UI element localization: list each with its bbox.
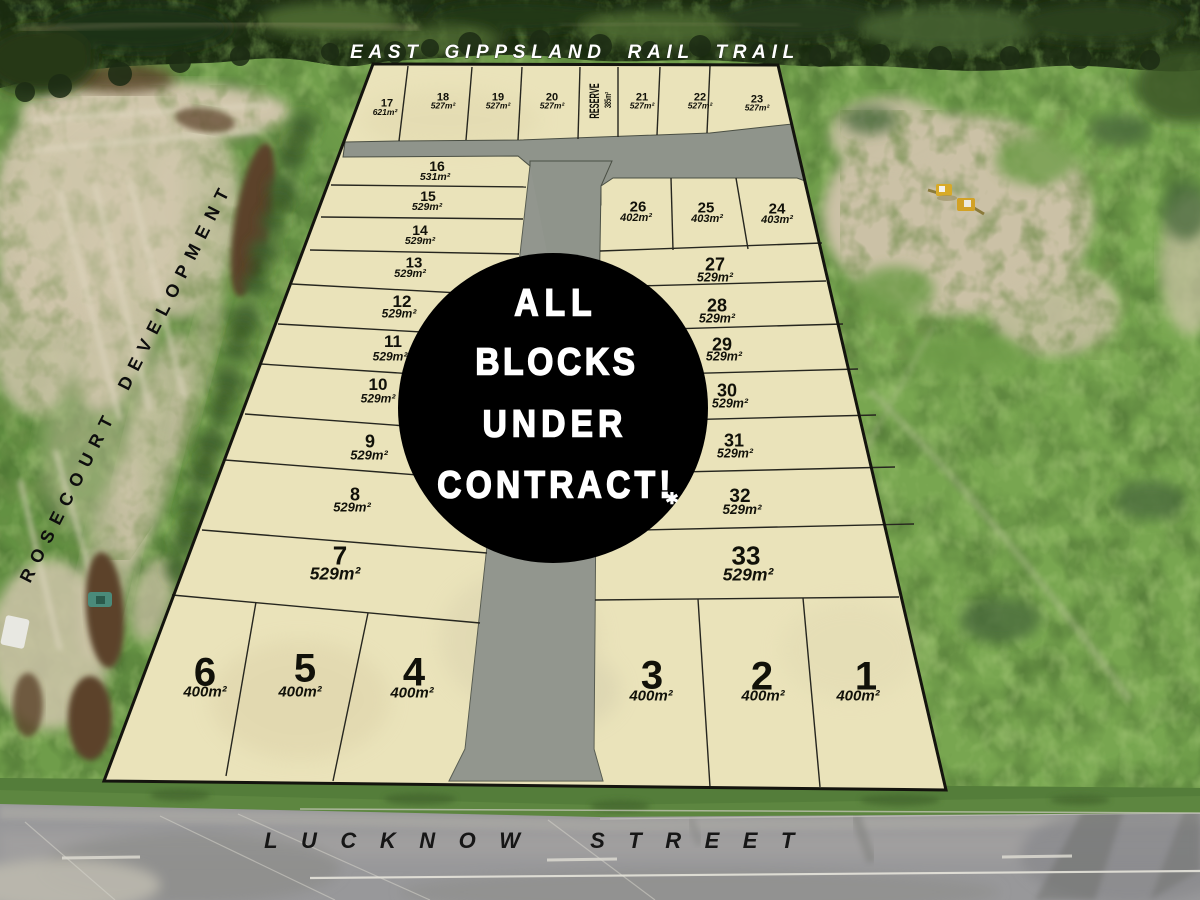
svg-text:529m²: 529m² [394, 268, 426, 280]
svg-text:400m²: 400m² [740, 687, 785, 704]
svg-text:529m²: 529m² [712, 397, 749, 411]
svg-text:529m²: 529m² [361, 391, 397, 405]
svg-text:529m²: 529m² [699, 312, 736, 326]
svg-text:529m²: 529m² [333, 500, 371, 515]
svg-text:ALL: ALL [514, 282, 597, 324]
svg-text:400m²: 400m² [835, 687, 880, 704]
svg-text:529m²: 529m² [722, 502, 762, 517]
svg-text:403m²: 403m² [760, 214, 793, 226]
svg-text:400m²: 400m² [182, 683, 227, 700]
svg-text:400m²: 400m² [389, 684, 434, 701]
svg-text:BLOCKS: BLOCKS [475, 341, 638, 383]
svg-text:527m²: 527m² [745, 103, 771, 113]
svg-text:LUCKNOW STREET: LUCKNOW STREET [264, 828, 818, 853]
svg-text:527m²: 527m² [486, 101, 512, 111]
svg-text:CONTRACT!: CONTRACT! [437, 464, 674, 506]
svg-text:529m²: 529m² [723, 564, 775, 584]
svg-text:529m²: 529m² [382, 306, 418, 320]
svg-text:531m²: 531m² [420, 171, 451, 183]
svg-text:529m²: 529m² [350, 448, 388, 463]
svg-text:529m²: 529m² [405, 235, 436, 247]
svg-text:529m²: 529m² [412, 201, 443, 213]
svg-text:529m²: 529m² [373, 349, 409, 363]
svg-text:✱: ✱ [665, 491, 678, 508]
svg-text:11: 11 [384, 332, 402, 351]
svg-text:385m²: 385m² [603, 92, 614, 108]
svg-text:UNDER: UNDER [483, 403, 628, 445]
svg-text:529m²: 529m² [697, 271, 734, 285]
svg-text:529m²: 529m² [706, 350, 743, 364]
svg-text:403m²: 403m² [690, 213, 723, 225]
svg-text:527m²: 527m² [431, 101, 457, 111]
svg-text:621m²: 621m² [373, 107, 399, 117]
svg-text:RESERVE: RESERVE [588, 83, 603, 118]
svg-text:527m²: 527m² [540, 101, 566, 111]
svg-text:402m²: 402m² [619, 212, 652, 224]
svg-text:527m²: 527m² [630, 101, 656, 111]
svg-text:529m²: 529m² [717, 447, 754, 461]
svg-text:400m²: 400m² [277, 683, 322, 700]
svg-text:529m²: 529m² [310, 563, 362, 583]
svg-text:527m²: 527m² [688, 101, 714, 111]
svg-text:400m²: 400m² [628, 687, 673, 704]
svg-text:EAST GIPPSLAND RAIL TRAIL: EAST GIPPSLAND RAIL TRAIL [350, 42, 800, 63]
